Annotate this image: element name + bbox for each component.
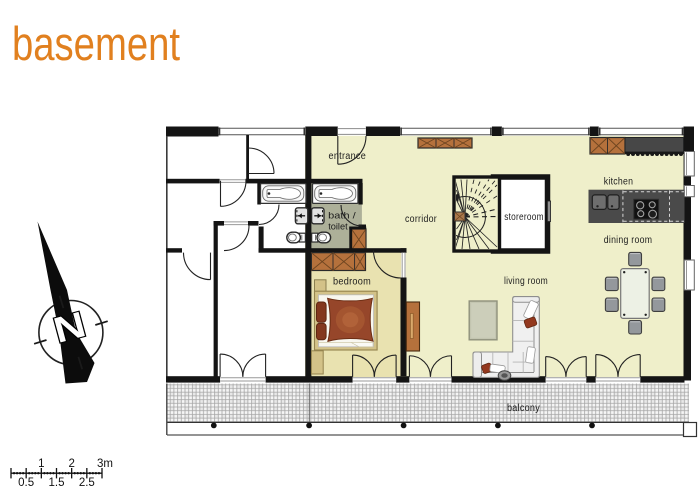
- svg-text:0.5: 0.5: [18, 477, 34, 489]
- svg-text:2.5: 2.5: [79, 477, 95, 489]
- svg-text:storeroom: storeroom: [504, 212, 544, 223]
- svg-text:dining room: dining room: [604, 235, 653, 246]
- svg-text:balcony: balcony: [507, 403, 540, 414]
- svg-text:entrance: entrance: [329, 151, 367, 162]
- svg-text:corridor: corridor: [405, 214, 437, 225]
- svg-text:bath /: bath /: [328, 211, 356, 222]
- svg-text:toilet: toilet: [328, 222, 348, 233]
- svg-text:basement: basement: [12, 17, 180, 70]
- svg-text:3m: 3m: [97, 458, 113, 470]
- svg-text:kitchen: kitchen: [604, 177, 634, 188]
- svg-text:1: 1: [38, 458, 44, 470]
- svg-text:living room: living room: [504, 276, 548, 287]
- svg-text:bedroom: bedroom: [333, 276, 371, 287]
- svg-text:1.5: 1.5: [49, 477, 65, 489]
- svg-text:2: 2: [68, 458, 74, 470]
